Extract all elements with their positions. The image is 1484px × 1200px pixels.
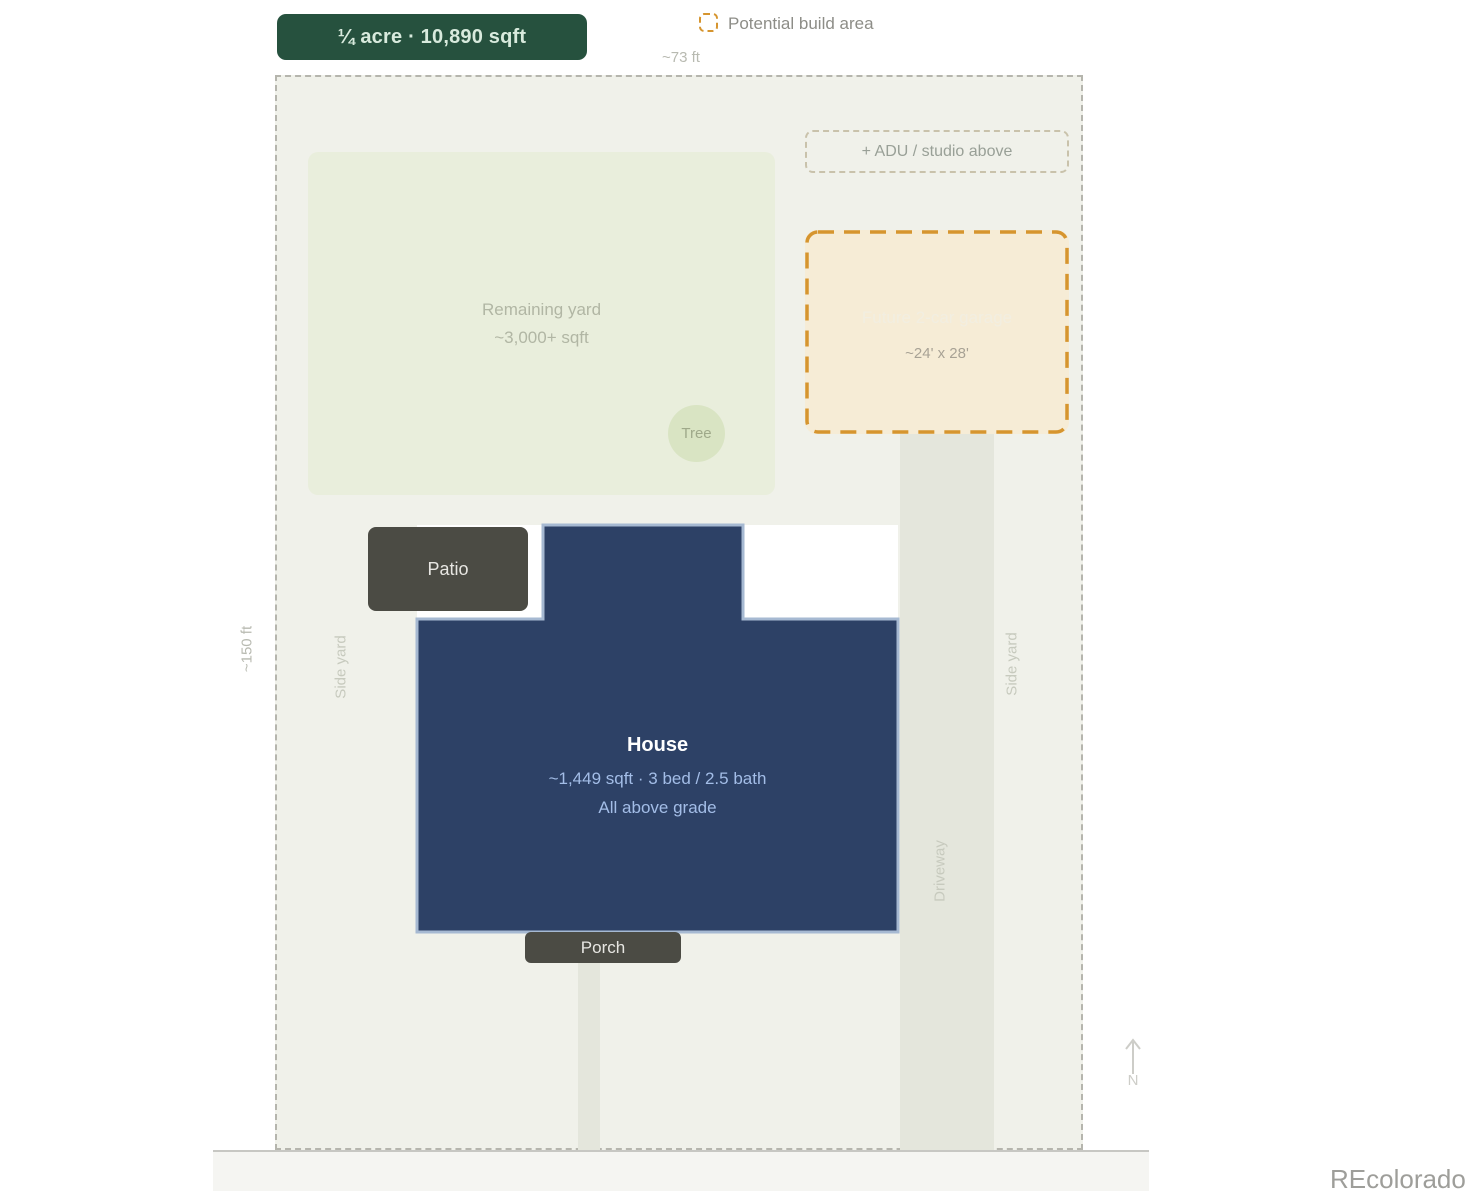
- patio-area: Patio: [368, 527, 528, 611]
- patio-label: Patio: [427, 559, 468, 580]
- house-title: House: [627, 734, 688, 757]
- house-info: House ~1,449 sqft · 3 bed / 2.5 bath All…: [417, 619, 898, 932]
- lot-size-badge: ¼ acre · 10,890 sqft: [277, 14, 587, 60]
- build-area-legend-label: Potential build area: [728, 14, 874, 34]
- side-yard-right-label: Side yard: [1004, 632, 1021, 695]
- walkway-path: [578, 930, 600, 1150]
- adu-build-area: + ADU / studio above: [805, 130, 1069, 173]
- north-label: N: [1121, 1072, 1145, 1089]
- side-yard-left-label: Side yard: [333, 635, 350, 698]
- house-note: All above grade: [598, 798, 716, 818]
- garage-title: Future 2-car garage: [862, 302, 1012, 333]
- site-plan-canvas: Remaining yard ~3,000+ sqft Tree + ADU /…: [0, 0, 1484, 1200]
- remaining-yard-subtitle: ~3,000+ sqft: [494, 324, 589, 352]
- remaining-yard-title: Remaining yard: [482, 296, 601, 324]
- adu-label: + ADU / studio above: [862, 143, 1013, 161]
- porch-area: Porch: [525, 932, 681, 963]
- garage-size: ~24' x 28': [905, 345, 969, 362]
- lot-depth-dimension: ~150 ft: [239, 626, 256, 672]
- street-strip: [213, 1150, 1149, 1191]
- recolorado-watermark: REcolorado: [1330, 1164, 1466, 1195]
- build-area-legend-icon: [699, 13, 718, 32]
- house-details: ~1,449 sqft · 3 bed / 2.5 bath: [549, 769, 767, 789]
- lot-size-badge-label: ¼ acre · 10,890 sqft: [338, 26, 527, 49]
- driveway-label: Driveway: [932, 840, 949, 902]
- future-garage-area: Future 2-car garage ~24' x 28': [805, 230, 1069, 434]
- tree-marker: Tree: [668, 405, 725, 462]
- lot-frontage-dimension: ~73 ft: [631, 49, 731, 66]
- driveway-area: [900, 434, 994, 1150]
- north-arrow-icon: [1121, 1036, 1145, 1076]
- porch-label: Porch: [581, 938, 625, 958]
- tree-label: Tree: [681, 425, 711, 442]
